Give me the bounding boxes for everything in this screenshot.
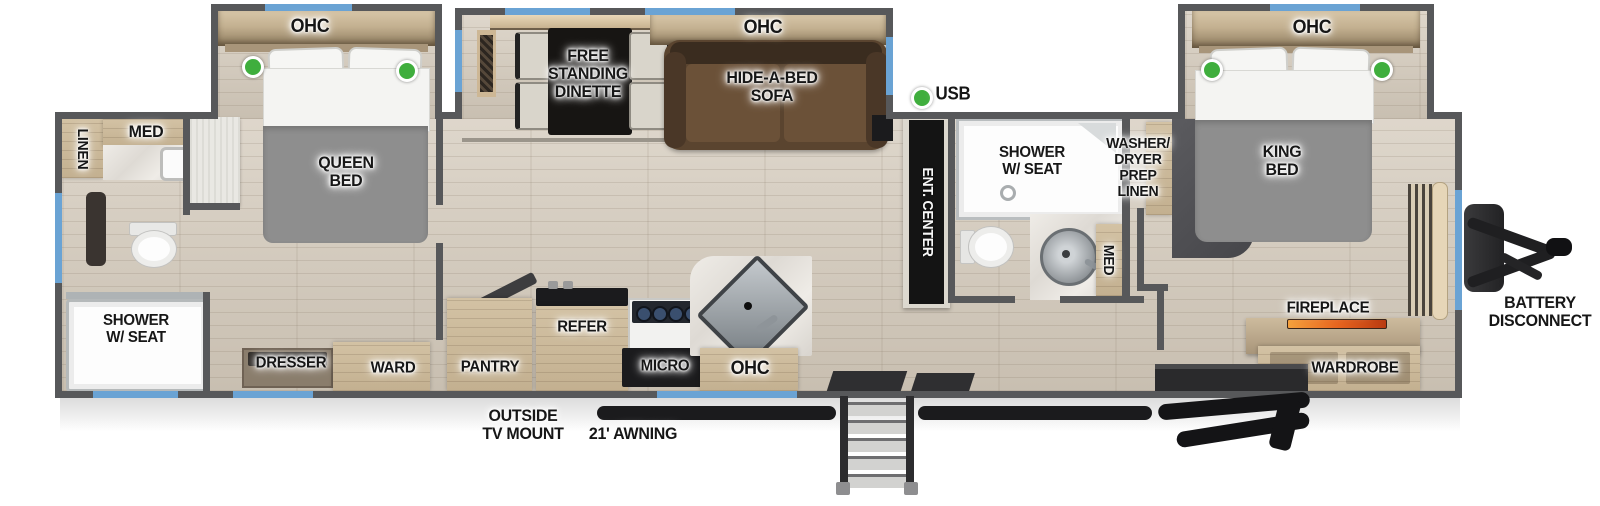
entry-step-tread — [848, 474, 906, 488]
label-washer-dryer: WASHER/ DRYER PREP LINEN — [1106, 136, 1170, 200]
floorplan: LINEN MED SHOWER W/ SEAT OHC QUEEN BED D… — [0, 0, 1600, 506]
wall-rear-bath — [183, 119, 190, 215]
wall-rear-shower — [203, 292, 210, 391]
entry-mat — [827, 371, 907, 391]
rear-toilet-bowl — [131, 230, 177, 268]
rear-shower-glass — [66, 292, 203, 299]
wall-top — [62, 112, 211, 119]
window — [1455, 190, 1462, 310]
entry-step-tread — [848, 456, 906, 470]
bedroom-closet-rear — [190, 117, 240, 205]
refrigerator-handle — [548, 281, 558, 289]
label-outside-tv: OUTSIDE TV MOUNT — [482, 407, 563, 443]
label-linen-rear: LINEN — [74, 129, 90, 170]
label-med-rear: MED — [129, 123, 164, 141]
wall-top — [893, 112, 1178, 119]
queen-slide-wall — [435, 4, 442, 119]
entry-step-foot — [904, 482, 918, 495]
label-ward: WARD — [371, 361, 416, 378]
mid-sink-drain — [1062, 250, 1070, 258]
entry-step-tread — [848, 438, 906, 452]
reading-light-king-left — [1201, 59, 1223, 81]
wall-frontbed — [1157, 291, 1164, 350]
wall-top — [1434, 112, 1455, 119]
wall-top — [442, 112, 455, 119]
king-slide-wall — [1178, 4, 1185, 119]
label-micro: MICRO — [641, 359, 690, 376]
wall-midbath-bottom — [1060, 296, 1144, 303]
queen-slide-wall — [211, 4, 218, 119]
refrigerator-top — [536, 288, 628, 306]
wall-midbath-left — [948, 119, 955, 298]
label-ohc-dinette: OHC — [744, 18, 783, 38]
wall-bedroom1 — [436, 243, 443, 340]
sofa-back — [670, 42, 882, 64]
mid-toilet-bowl — [968, 226, 1014, 268]
label-ohc-queen: OHC — [291, 17, 330, 37]
label-usb: USB — [936, 84, 971, 103]
entry-step-foot — [836, 482, 850, 495]
reading-light-queen-left — [242, 56, 264, 78]
slide-tv-screen — [480, 35, 493, 92]
wall-frontbed — [1137, 284, 1168, 291]
wall-bedroom1 — [436, 119, 443, 205]
label-fireplace: FIREPLACE — [1287, 301, 1370, 318]
label-awning: 21' AWNING — [589, 425, 677, 443]
pantry — [447, 298, 532, 391]
reading-light-queen-right — [396, 60, 418, 82]
label-pantry: PANTRY — [461, 360, 519, 377]
window — [645, 8, 735, 15]
entry-steps-rail — [906, 396, 914, 484]
entry-steps-rail — [840, 396, 848, 484]
label-battery: BATTERY DISCONNECT — [1489, 294, 1592, 330]
hitch-coupler — [1546, 238, 1572, 256]
wall-midbath-bottom — [948, 296, 1015, 303]
awning-bar — [597, 406, 836, 420]
burner — [636, 306, 652, 322]
window — [1270, 4, 1360, 11]
mid-round-sink — [1040, 228, 1098, 286]
label-wardrobe: WARDROBE — [1311, 361, 1398, 378]
closet-edge — [190, 203, 240, 210]
label-ent-center: ENT. CENTER — [919, 167, 935, 256]
label-shower-rear: SHOWER W/ SEAT — [103, 313, 169, 347]
fireplace-flame — [1287, 319, 1387, 329]
label-ohc-kitchen: OHC — [731, 359, 770, 379]
mid-shower-drain — [1000, 185, 1016, 201]
entry-step-tread — [848, 402, 906, 416]
wall-frontbed — [1137, 208, 1144, 291]
label-refer: REFER — [557, 320, 607, 337]
window — [265, 4, 352, 11]
window — [93, 391, 178, 398]
window — [55, 193, 62, 283]
window — [233, 391, 313, 398]
label-queen-bed: QUEEN BED — [318, 154, 373, 190]
king-slide-wall — [1427, 4, 1434, 119]
entry-mat — [911, 373, 975, 391]
window — [505, 8, 590, 15]
window — [455, 30, 462, 92]
window — [886, 37, 893, 95]
king-bed — [1195, 120, 1372, 242]
burner — [652, 306, 668, 322]
label-sofa: HIDE-A-BED SOFA — [726, 69, 817, 105]
label-ohc-king: OHC — [1293, 18, 1332, 38]
label-dresser: DRESSER — [256, 356, 327, 373]
front-window-frame — [1432, 182, 1448, 320]
burner — [668, 306, 684, 322]
label-dinette: FREE STANDING DINETTE — [548, 47, 628, 101]
awning-bar — [918, 406, 1152, 420]
sink-drain — [744, 302, 752, 310]
king-bed-sheet — [1195, 70, 1374, 124]
window — [657, 391, 797, 398]
label-king-bed: KING BED — [1263, 143, 1302, 179]
front-window-blinds — [1408, 184, 1434, 316]
entry-step-tread — [848, 420, 906, 434]
label-med-mid: MED — [1100, 245, 1116, 275]
rear-bath-door-panel — [86, 192, 106, 266]
sofa-armrest — [664, 52, 686, 148]
reading-light-king-right — [1371, 59, 1393, 81]
refrigerator-handle — [563, 281, 573, 289]
label-shower-mid: SHOWER W/ SEAT — [999, 145, 1065, 179]
usb-indicator — [911, 87, 933, 109]
